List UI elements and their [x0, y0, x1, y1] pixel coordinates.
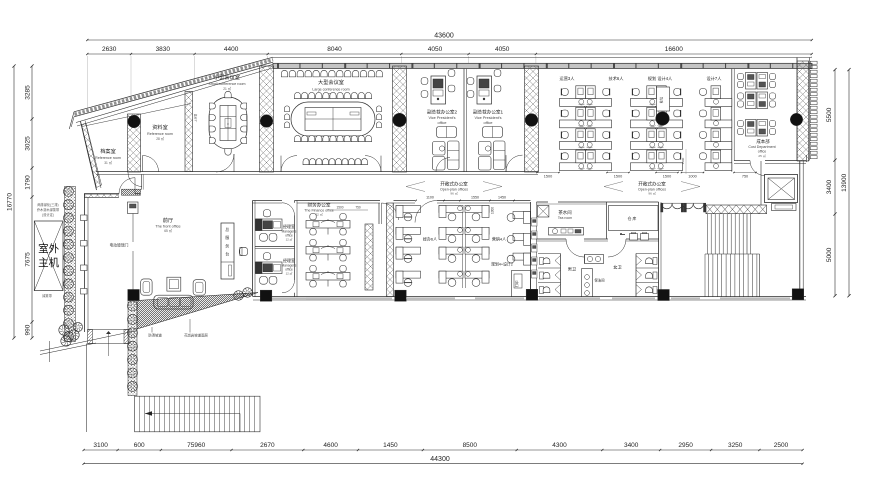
svg-text:12 ㎡: 12 ㎡: [286, 272, 293, 276]
svg-text:3025: 3025: [25, 136, 32, 151]
svg-text:仓 库: 仓 库: [628, 216, 637, 221]
svg-text:1100: 1100: [426, 195, 434, 199]
svg-text:(设计定): (设计定): [42, 212, 54, 217]
svg-text:32 ㎡: 32 ㎡: [315, 212, 322, 217]
svg-text:1500: 1500: [544, 175, 552, 179]
svg-text:28 ㎡: 28 ㎡: [156, 136, 164, 141]
svg-text:1500: 1500: [614, 175, 622, 179]
svg-text:1550: 1550: [471, 195, 479, 199]
svg-text:两排绿化(三排): 两排绿化(三排): [37, 202, 58, 207]
svg-text:Vice President's: Vice President's: [428, 116, 455, 120]
svg-text:防滑坡道: 防滑坡道: [148, 333, 162, 338]
svg-text:小型会议室: 小型会议室: [214, 73, 240, 81]
svg-text:乔木灌木绿篱带: 乔木灌木绿篱带: [37, 207, 60, 212]
svg-text:75960: 75960: [187, 442, 205, 449]
svg-text:3400: 3400: [624, 442, 639, 449]
svg-text:上水管: 上水管: [194, 114, 198, 123]
svg-text:16600: 16600: [665, 46, 683, 53]
svg-text:4300: 4300: [552, 442, 567, 449]
svg-text:office: office: [483, 121, 492, 125]
svg-text:4400: 4400: [224, 46, 239, 53]
svg-text:绿篱带: 绿篱带: [42, 293, 52, 298]
svg-text:750: 750: [742, 175, 748, 179]
svg-text:大型会议室: 大型会议室: [318, 78, 344, 86]
svg-text:44300: 44300: [430, 456, 450, 463]
svg-text:柱位: 柱位: [659, 96, 664, 103]
svg-text:The front office: The front office: [155, 225, 180, 229]
svg-text:服: 服: [225, 234, 229, 240]
svg-text:4050: 4050: [495, 46, 510, 53]
svg-text:4600: 4600: [323, 442, 338, 449]
svg-text:12 ㎡: 12 ㎡: [286, 238, 293, 242]
svg-text:主机: 主机: [38, 256, 59, 269]
svg-text:茶水间: 茶水间: [558, 209, 571, 216]
svg-text:5000: 5000: [826, 247, 833, 262]
svg-text:Reference room: Reference room: [147, 132, 173, 136]
svg-text:96 ㎡: 96 ㎡: [450, 191, 457, 196]
svg-text:规划 设计4人: 规划 设计4人: [648, 75, 673, 82]
svg-text:保洁间: 保洁间: [594, 278, 605, 283]
svg-text:副总裁办公室1: 副总裁办公室1: [473, 109, 504, 116]
svg-text:2500: 2500: [774, 442, 789, 449]
svg-text:2630: 2630: [102, 46, 117, 53]
svg-text:1450: 1450: [498, 195, 506, 199]
svg-text:女卫: 女卫: [613, 264, 621, 271]
svg-text:2670: 2670: [260, 442, 275, 449]
svg-text:16770: 16770: [7, 193, 14, 211]
svg-text:1500: 1500: [336, 206, 343, 210]
svg-text:25 ㎡: 25 ㎡: [758, 153, 765, 158]
svg-text:室外: 室外: [38, 242, 59, 255]
svg-text:Tea room: Tea room: [558, 216, 572, 220]
svg-text:2950: 2950: [678, 442, 693, 449]
svg-text:750: 750: [355, 206, 361, 210]
svg-text:5500: 5500: [826, 107, 833, 122]
svg-text:43600: 43600: [434, 33, 454, 40]
svg-text:1500: 1500: [663, 175, 671, 179]
svg-text:成本部: 成本部: [756, 138, 770, 145]
svg-text:office: office: [437, 121, 446, 125]
svg-text:600: 600: [134, 442, 145, 449]
svg-text:3100: 3100: [93, 442, 108, 449]
svg-text:经理室: 经理室: [283, 223, 295, 229]
svg-text:务: 务: [225, 242, 229, 248]
svg-text:3250: 3250: [728, 442, 743, 449]
svg-text:65 ㎡: 65 ㎡: [164, 228, 172, 233]
svg-text:31 ㎡: 31 ㎡: [104, 160, 112, 165]
svg-text:7675: 7675: [25, 252, 32, 267]
svg-text:营销4人: 营销4人: [492, 236, 506, 242]
svg-text:技术6人: 技术6人: [609, 75, 625, 82]
svg-text:96 ㎡: 96 ㎡: [648, 191, 655, 196]
svg-text:3400: 3400: [826, 179, 833, 194]
svg-text:电动玻璃门: 电动玻璃门: [110, 243, 129, 248]
svg-text:1790: 1790: [25, 175, 32, 190]
svg-text:1450: 1450: [383, 442, 398, 449]
svg-text:开敞式办公室: 开敞式办公室: [440, 181, 468, 188]
svg-text:规划4+设计2: 规划4+设计2: [491, 262, 513, 267]
svg-text:office: office: [758, 150, 767, 154]
svg-text:3830: 3830: [156, 46, 171, 53]
svg-text:1300: 1300: [491, 207, 495, 214]
svg-text:财务办公室: 财务办公室: [308, 202, 331, 209]
svg-text:990: 990: [25, 324, 32, 335]
svg-text:8500: 8500: [463, 442, 478, 449]
svg-text:13900: 13900: [841, 173, 848, 191]
svg-text:经理室: 经理室: [283, 257, 295, 263]
svg-text:花岗岩坡道面层: 花岗岩坡道面层: [184, 333, 208, 338]
svg-text:4050: 4050: [428, 46, 443, 53]
svg-text:8040: 8040: [327, 46, 342, 53]
svg-text:档案室: 档案室: [100, 147, 116, 155]
svg-text:总: 总: [225, 226, 229, 232]
svg-text:设计7人: 设计7人: [707, 75, 723, 82]
svg-text:台: 台: [225, 251, 229, 257]
svg-text:3285: 3285: [25, 85, 32, 100]
svg-text:开敞式办公室: 开敞式办公室: [638, 181, 666, 188]
svg-text:21 ㎡: 21 ㎡: [223, 86, 231, 91]
svg-text:运营3人: 运营3人: [560, 75, 576, 82]
svg-text:Small conference room: Small conference room: [209, 82, 246, 86]
svg-text:Cost Department: Cost Department: [748, 145, 775, 149]
svg-text:经办6人: 经办6人: [423, 236, 437, 242]
svg-text:1000: 1000: [688, 175, 696, 179]
svg-text:资料室: 资料室: [152, 123, 168, 131]
svg-text:Vice President's: Vice President's: [474, 116, 501, 120]
svg-text:Large conference room: Large conference room: [312, 88, 349, 92]
svg-text:1500: 1500: [681, 157, 685, 164]
svg-text:打印: 打印: [514, 280, 519, 287]
svg-text:副总裁办公室2: 副总裁办公室2: [427, 109, 458, 116]
svg-text:前厅: 前厅: [163, 216, 173, 224]
svg-text:Reference room: Reference room: [95, 156, 121, 160]
